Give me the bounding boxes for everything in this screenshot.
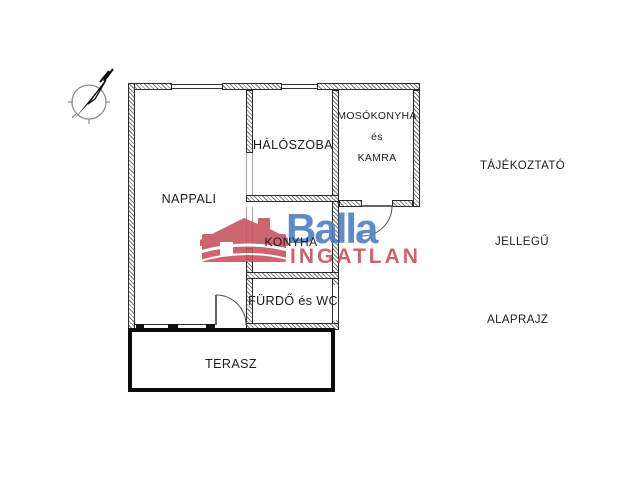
room-label-konyha: KONYHA bbox=[251, 235, 331, 249]
room-label-furdo: FÜRDŐ és WC bbox=[248, 294, 338, 308]
caption-line-3: ALAPRAJZ bbox=[487, 314, 548, 326]
brand-subtitle: INGATLAN bbox=[290, 246, 421, 267]
room-label-terasz: TERASZ bbox=[186, 357, 276, 371]
wall-top-c bbox=[317, 83, 420, 90]
window-nappali-top bbox=[172, 84, 222, 89]
room-label-mosokonyha-line3: KAMRA bbox=[358, 152, 397, 164]
room-label-mosokonyha-line1: MOSÓKONYHA bbox=[337, 110, 416, 122]
door-opening-haloszoba bbox=[246, 153, 253, 195]
wall-annex-bottom-b bbox=[392, 200, 413, 207]
room-label-mosokonyha-line2: és bbox=[371, 131, 383, 143]
window-haloszoba-top bbox=[282, 84, 317, 89]
wall-haloszoba-bottom bbox=[246, 195, 339, 202]
wall-left bbox=[128, 83, 135, 330]
caption-line-1: TÁJÉKOZTATÓ bbox=[480, 160, 565, 172]
room-label-nappali: NAPPALI bbox=[144, 192, 234, 206]
caption-line-2: JELLEGŰ bbox=[495, 236, 549, 248]
room-label-haloszoba: HÁLÓSZOBA bbox=[248, 138, 338, 152]
room-label-mosokonyha: MOSÓKONYHA és KAMRA bbox=[336, 110, 418, 164]
floorplan-image: Balla INGATLAN NAPPALI HÁLÓSZOBA MOSÓKON… bbox=[0, 0, 640, 480]
wall-top-b bbox=[222, 83, 282, 90]
north-compass-icon bbox=[64, 68, 122, 132]
wall-konyha-bottom bbox=[246, 272, 339, 279]
